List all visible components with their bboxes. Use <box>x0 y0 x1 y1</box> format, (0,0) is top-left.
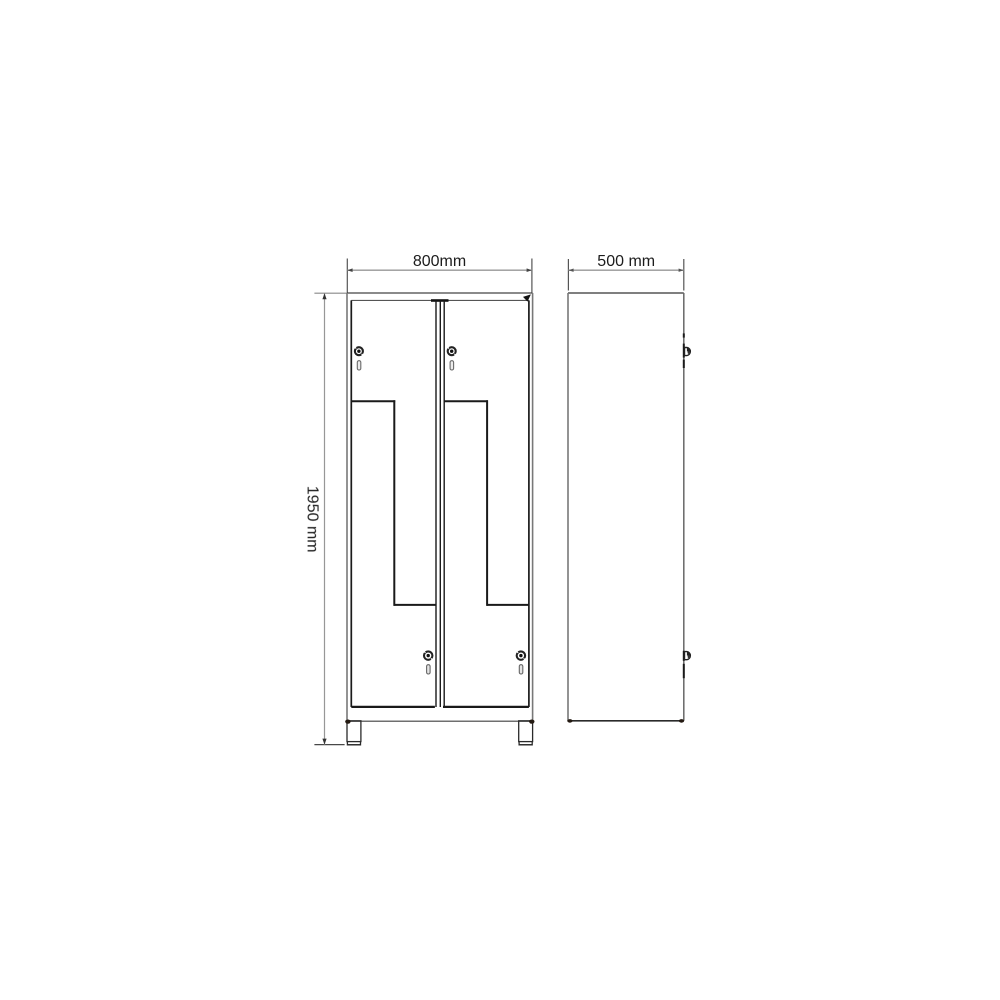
svg-text:500 mm: 500 mm <box>597 253 655 270</box>
svg-text:1950 mm: 1950 mm <box>304 486 321 553</box>
svg-text:800mm: 800mm <box>413 253 466 270</box>
